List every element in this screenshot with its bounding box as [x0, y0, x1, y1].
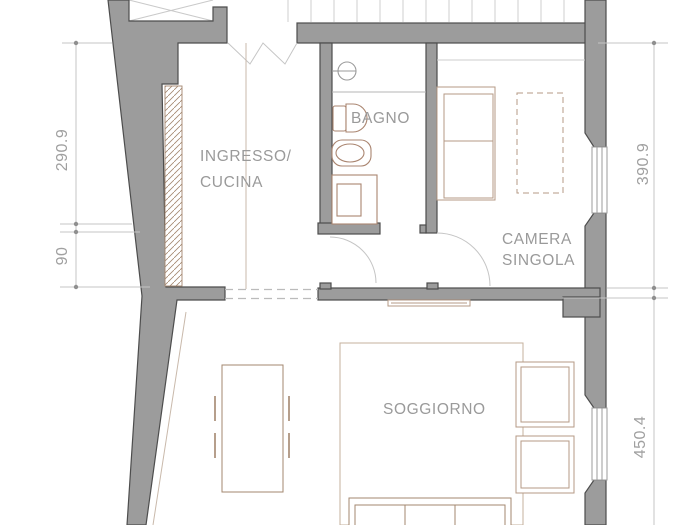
- room-label-camera-singola: CAMERA SINGOLA: [502, 229, 575, 271]
- ingresso-label-line1: INGRESSO/: [200, 144, 292, 170]
- window-1: [592, 147, 607, 213]
- sofa: [349, 498, 511, 525]
- floor-plan-drawing: [0, 0, 700, 525]
- divider-wall-foot: [420, 225, 426, 233]
- right-wall-lower: [585, 480, 606, 525]
- camera-label-line2: SINGOLA: [502, 250, 575, 271]
- armchair-2: [516, 436, 574, 493]
- door-swing-arc-1: [330, 237, 376, 283]
- wardrobe-dashed-outline: [517, 93, 563, 193]
- entrance-door-symbol: [228, 43, 297, 64]
- dining-table: [222, 365, 283, 492]
- shower-tray-symbol: [332, 175, 377, 224]
- middle-wall: [318, 288, 600, 300]
- camera-label-line1: CAMERA: [502, 229, 575, 250]
- bathroom-left-wall: [320, 43, 332, 233]
- shaft-x-brace: [129, 0, 213, 21]
- sideboard: [388, 300, 470, 306]
- bathroom-camera-divider-wall: [426, 43, 437, 233]
- armchair-1: [516, 362, 574, 427]
- top-wall: [297, 23, 600, 43]
- right-wall-upper: [585, 0, 606, 147]
- room-label-soggiorno: SOGGIORNO: [383, 397, 486, 423]
- window-2: [592, 408, 607, 480]
- camera-furniture: [437, 87, 563, 200]
- bathroom-fixtures: [332, 62, 426, 224]
- room-label-bagno: BAGNO: [351, 106, 410, 132]
- door-swing-arc-2: [437, 233, 490, 286]
- single-bed: [437, 87, 495, 200]
- kitchen-counter-hatch: [165, 86, 182, 286]
- middle-wall-end-block: [563, 297, 600, 317]
- ingresso-label-line2: CUCINA: [200, 170, 292, 196]
- middle-wall-jamb-right: [427, 283, 438, 289]
- dimension-right-upper: 390.9: [635, 124, 653, 204]
- dimension-left-lower: 90: [54, 216, 72, 296]
- bathroom-bottom-wall: [318, 223, 380, 234]
- floor-plan: INGRESSO/ CUCINA BAGNO CAMERA SINGOLA SO…: [0, 0, 700, 525]
- lamp-symbol: [332, 62, 356, 80]
- dimension-left-upper: 290.9: [54, 110, 72, 190]
- bidet-symbol: [332, 140, 371, 166]
- middle-wall-jamb-left: [320, 283, 331, 289]
- stairs-treads: [288, 0, 564, 22]
- room-label-ingresso-cucina: INGRESSO/ CUCINA: [200, 144, 292, 196]
- wall-opening-dashed: [225, 290, 318, 299]
- dimension-right-lower: 450.4: [632, 397, 650, 477]
